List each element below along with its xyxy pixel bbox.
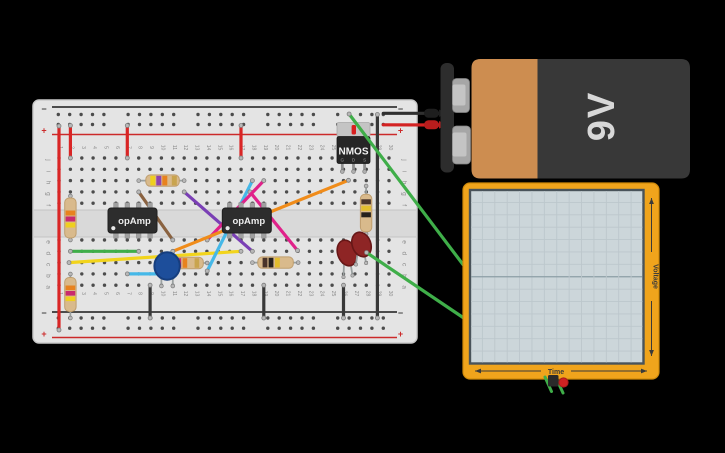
column-number: 15 [216, 291, 222, 297]
column-number: 7 [125, 292, 131, 295]
resistor-col2-upper[interactable] [65, 194, 76, 242]
column-number: 14 [205, 145, 211, 151]
column-number: 25 [330, 291, 336, 297]
row-letter: f [45, 204, 52, 206]
column-number: 17 [239, 291, 245, 297]
rail-polarity-label: − [41, 104, 46, 114]
opamp1-label: opAmp [118, 216, 151, 227]
column-number: 16 [228, 145, 234, 151]
column-number: 16 [228, 291, 234, 297]
row-letter: i [45, 171, 52, 172]
column-number: 13 [194, 145, 200, 151]
nmos-tab-mark [352, 125, 356, 135]
column-number: 22 [296, 291, 302, 297]
column-number: 8 [137, 146, 143, 149]
scope-negative-probe[interactable] [548, 375, 559, 387]
column-number: 18 [250, 145, 256, 151]
row-letter: g [401, 192, 408, 196]
circuit-svg: 1122334455667788991010111112121313141415… [0, 0, 725, 453]
rail-polarity-label: − [41, 308, 46, 318]
wire-red-col2[interactable] [68, 124, 72, 161]
column-number: 27 [353, 291, 359, 297]
column-number: 23 [307, 145, 313, 151]
column-number: 14 [205, 291, 211, 297]
rail-polarity-label: + [41, 126, 46, 136]
scope-time-label: Time [548, 369, 564, 376]
battery-positive-plug [424, 120, 439, 129]
column-number: 4 [91, 292, 97, 295]
column-number: 6 [114, 292, 120, 295]
column-number: 12 [182, 145, 188, 151]
wire-black-col19[interactable] [262, 283, 266, 320]
opamp-2[interactable]: opAmp [222, 203, 271, 238]
column-number: 24 [319, 291, 325, 297]
nmos-label: NMOS [339, 147, 369, 158]
column-number: 11 [171, 291, 177, 296]
opamp1-pin1-dot [111, 226, 115, 230]
column-number: 13 [194, 291, 200, 297]
circuit-canvas: 1122334455667788991010111112121313141415… [0, 0, 725, 453]
column-number: 18 [250, 291, 256, 297]
column-number: 30 [387, 291, 393, 297]
row-letter: b [45, 274, 52, 278]
row-letter: j [45, 158, 52, 160]
column-number: 8 [137, 292, 143, 295]
column-number: 20 [273, 291, 279, 297]
column-number: 24 [319, 145, 325, 151]
rail-polarity-label: + [398, 126, 403, 136]
column-number: 6 [114, 146, 120, 149]
wire-black-col26[interactable] [342, 283, 346, 320]
column-number: 28 [364, 291, 370, 297]
wire-black-col29[interactable] [375, 113, 379, 321]
battery-terminal-negative-highlight [453, 85, 466, 106]
row-letter: g [45, 192, 52, 196]
column-number: 11 [171, 145, 177, 150]
column-number: 15 [216, 145, 222, 151]
row-letter: d [401, 251, 408, 255]
column-number: 3 [80, 292, 86, 295]
column-number: 10 [159, 291, 165, 297]
column-number: 5 [103, 292, 109, 295]
nmos-transistor[interactable]: NMOS GDS [337, 123, 370, 174]
wire-red-col17[interactable] [239, 124, 243, 161]
wire-red-left-rail[interactable] [57, 124, 61, 332]
row-letter: i [401, 171, 408, 172]
column-number: 21 [285, 291, 291, 297]
wire-black-col9[interactable] [148, 283, 152, 320]
scope-voltage-label: Voltage [652, 264, 659, 289]
column-number: 21 [285, 145, 291, 151]
column-number: 9 [148, 146, 154, 149]
oscilloscope[interactable]: Time Voltage [463, 183, 659, 393]
column-number: 3 [80, 146, 86, 149]
column-number: 5 [103, 146, 109, 149]
column-number: 4 [91, 146, 97, 149]
column-number: 30 [387, 145, 393, 151]
row-letter: j [401, 158, 408, 160]
row-letter: e [401, 240, 408, 244]
wire-green-rowd[interactable] [68, 249, 140, 253]
row-letter: h [45, 181, 52, 185]
column-number: 25 [330, 145, 336, 151]
column-number: 19 [262, 145, 268, 151]
column-number: 10 [159, 145, 165, 151]
battery-stripe [472, 59, 538, 179]
battery-cap [441, 63, 455, 173]
battery-terminal-positive-highlight [453, 133, 467, 157]
nmos-pin-label: S [363, 157, 366, 162]
rail-polarity-label: − [398, 308, 403, 318]
opamp-1[interactable]: opAmp [108, 203, 157, 238]
row-letter: f [401, 204, 408, 206]
battery-voltage-label: 9V [581, 91, 623, 141]
row-letter: a [401, 285, 408, 289]
column-number: 23 [307, 291, 313, 297]
rail-polarity-label: + [41, 329, 46, 339]
column-number: 22 [296, 145, 302, 151]
opamp2-label: opAmp [232, 216, 265, 227]
column-number: 20 [273, 145, 279, 151]
battery-negative-plug [424, 109, 439, 118]
opamp2-pin1-dot [226, 226, 230, 230]
rail-polarity-label: + [398, 329, 403, 339]
wire-red-col7[interactable] [125, 124, 129, 161]
scope-positive-probe[interactable] [559, 378, 568, 387]
column-number: 12 [182, 291, 188, 297]
row-letter: e [45, 240, 52, 244]
row-letter: d [45, 251, 52, 255]
row-letter: a [45, 285, 52, 289]
nmos-pin-label: G [341, 157, 345, 162]
